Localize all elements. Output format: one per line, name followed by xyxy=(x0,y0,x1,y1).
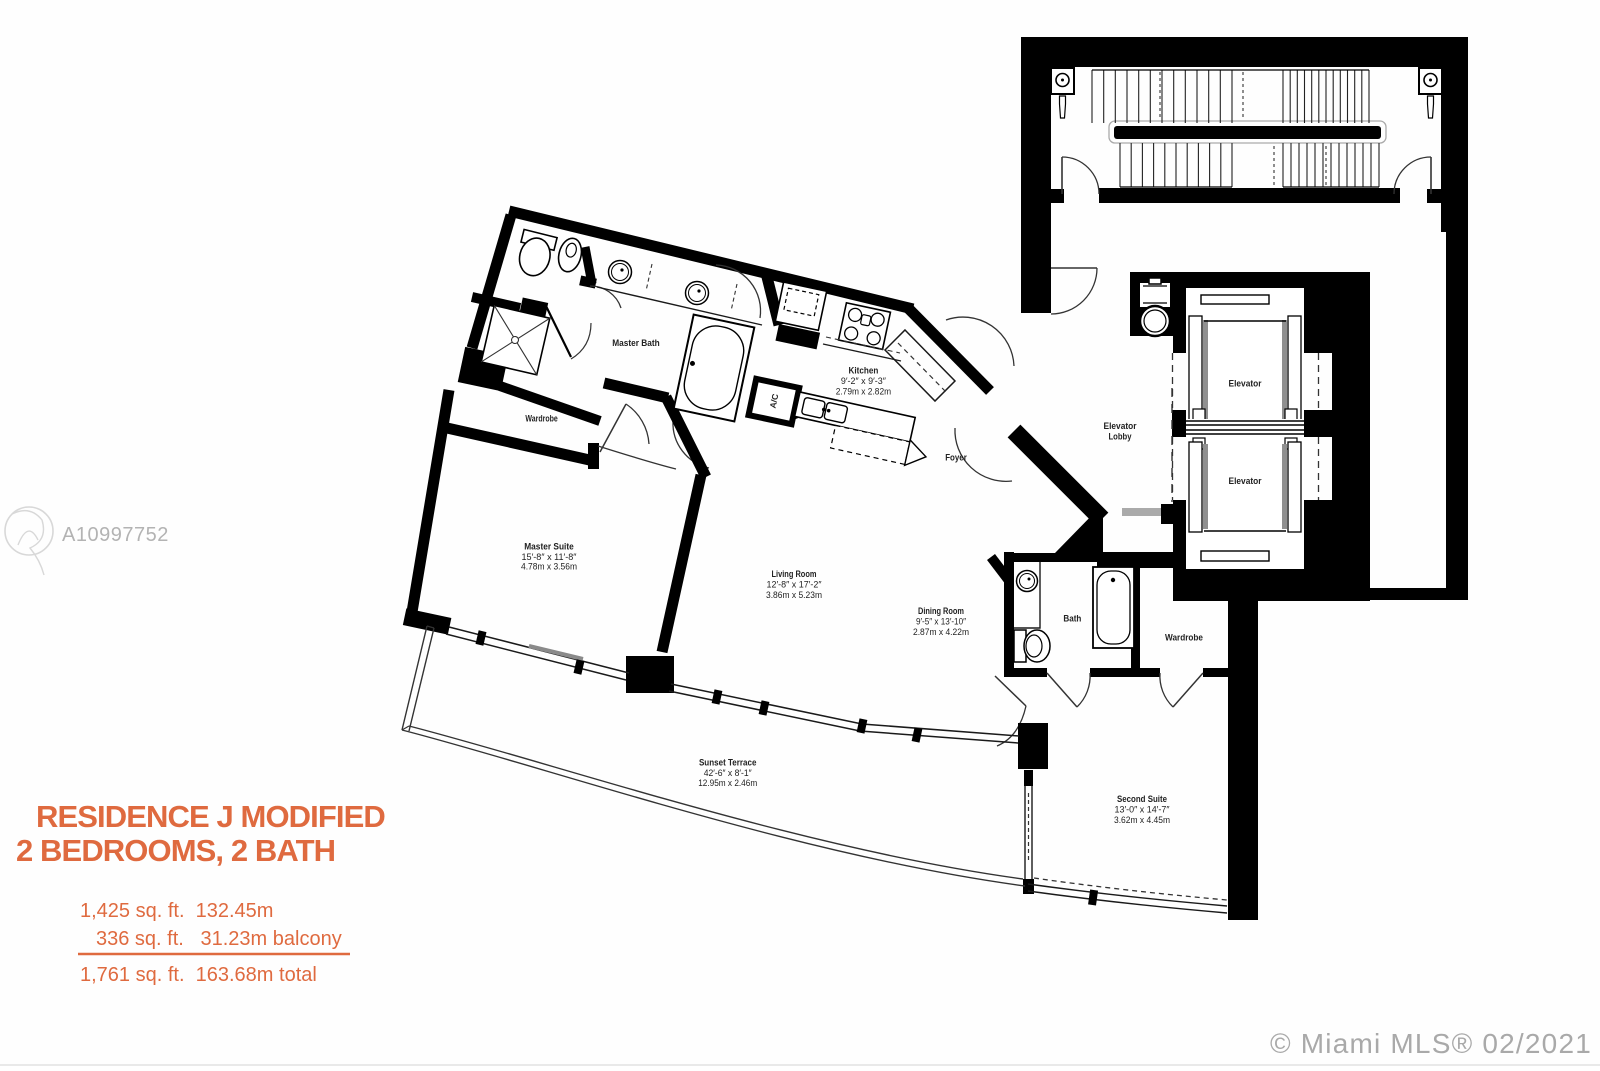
svg-text:2.79m x 2.82m: 2.79m x 2.82m xyxy=(836,386,892,396)
svg-text:© Miami MLS® 02/2021: © Miami MLS® 02/2021 xyxy=(1270,1028,1592,1059)
svg-text:Foyer: Foyer xyxy=(945,453,967,463)
svg-text:Bath: Bath xyxy=(1063,614,1081,624)
svg-text:Sunset Terrace: Sunset Terrace xyxy=(699,758,757,768)
svg-text:15′-8″ x 11′-8″: 15′-8″ x 11′-8″ xyxy=(522,552,578,562)
svg-text:Dining Room: Dining Room xyxy=(918,606,964,616)
svg-text:1,761 sq. ft. 163.68m total: 1,761 sq. ft. 163.68m total xyxy=(80,964,317,986)
svg-text:RESIDENCE J MODIFIED: RESIDENCE J MODIFIED xyxy=(36,799,385,834)
svg-text:336 sq. ft. 31.23m balcony: 336 sq. ft. 31.23m balcony xyxy=(96,928,342,950)
svg-text:Master Suite: Master Suite xyxy=(524,541,574,551)
svg-text:Second Suite: Second Suite xyxy=(1117,794,1167,804)
svg-text:A10997752: A10997752 xyxy=(62,524,169,546)
svg-text:1,425 sq. ft. 132.45m: 1,425 sq. ft. 132.45m xyxy=(80,900,273,922)
svg-text:2 BEDROOMS, 2 BATH: 2 BEDROOMS, 2 BATH xyxy=(16,833,335,868)
svg-text:3.62m x 4.45m: 3.62m x 4.45m xyxy=(1114,815,1170,825)
svg-text:3.86m x 5.23m: 3.86m x 5.23m xyxy=(766,590,822,600)
svg-text:Living Room: Living Room xyxy=(772,569,817,579)
svg-text:Master Bath: Master Bath xyxy=(612,338,660,348)
svg-text:9′-2″ x 9′-3″: 9′-2″ x 9′-3″ xyxy=(841,376,887,386)
svg-text:Wardrobe: Wardrobe xyxy=(1165,633,1203,643)
svg-text:13′-0″ x 14′-7″: 13′-0″ x 14′-7″ xyxy=(1115,804,1171,814)
svg-text:Lobby: Lobby xyxy=(1109,432,1133,442)
svg-text:Elevator: Elevator xyxy=(1229,378,1262,388)
svg-text:Elevator: Elevator xyxy=(1104,421,1137,431)
svg-text:Wardrobe: Wardrobe xyxy=(525,414,557,424)
svg-text:42′-6″ x 8′-1″: 42′-6″ x 8′-1″ xyxy=(704,768,753,778)
svg-text:12′-8″ x 17′-2″: 12′-8″ x 17′-2″ xyxy=(767,579,823,589)
svg-text:Elevator: Elevator xyxy=(1229,476,1262,486)
svg-text:12.95m x 2.46m: 12.95m x 2.46m xyxy=(698,778,757,788)
svg-text:Kitchen: Kitchen xyxy=(849,366,879,376)
svg-text:4.78m x 3.56m: 4.78m x 3.56m xyxy=(521,561,577,571)
svg-text:9′-5″ x 13′-10″: 9′-5″ x 13′-10″ xyxy=(916,616,967,626)
svg-text:2.87m x 4.22m: 2.87m x 4.22m xyxy=(913,627,969,637)
